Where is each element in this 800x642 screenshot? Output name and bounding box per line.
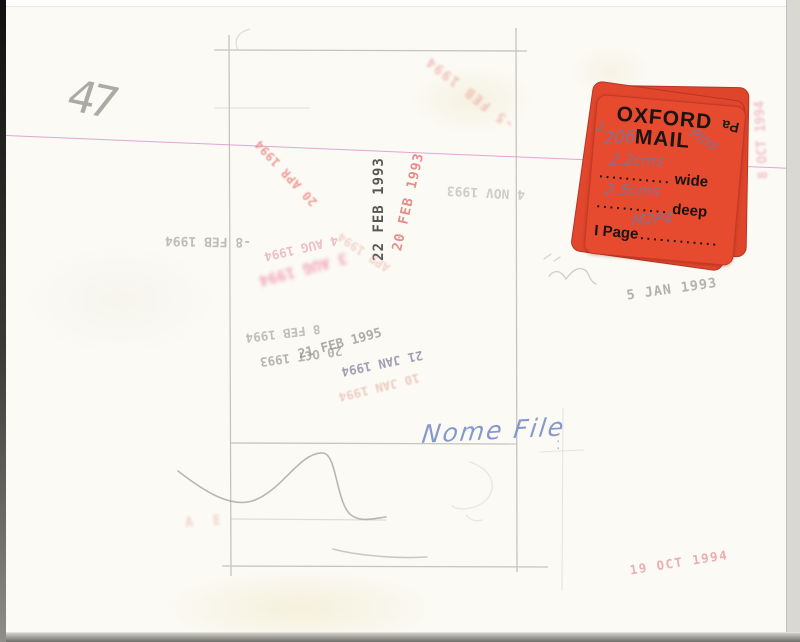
date-stamp: 5 JAN 1993 (626, 277, 718, 303)
photo-back-scan: 47 22 FEB 1993 20 FEB 1993 -5 FEB 1994 2… (0, 0, 800, 642)
scan-edge-bottom (0, 632, 800, 642)
date-stamp: 8 FEB 1994 (245, 322, 321, 344)
date-stamp: 8 OCT 1994 (753, 101, 770, 180)
file-note-mark: : (556, 436, 560, 454)
dotted-line: ........... (596, 196, 670, 215)
date-stamp: -8 FEB 1994 (165, 234, 251, 249)
scan-edge-right (786, 0, 800, 642)
pencil-wavy-curve (178, 453, 427, 558)
file-note-handwriting: Nome File (420, 412, 567, 449)
date-stamp: 20 FEB 1993 (391, 152, 427, 253)
page-label: I Page (594, 223, 639, 242)
date-stamp: 4 NOV 1993 (447, 183, 526, 200)
sticker-flipped-text: Pa (720, 117, 740, 136)
date-stamp: 22 FEB 1993 (372, 157, 386, 261)
scan-edge-top (0, 0, 800, 7)
oxford-mail-sticker: OXFORD MAIL Pa 2 206 Pins 2.2cms 2.5cms … (583, 94, 746, 266)
date-stamp: -5 FEB 1994 (423, 54, 516, 131)
corner-number-handwriting: 47 (61, 71, 120, 129)
date-stamp: 19 OCT 1994 (629, 549, 729, 577)
faded-stamp-fragment: A E (185, 514, 227, 530)
sticker-handwriting: 206 (603, 128, 637, 148)
scan-edge-left (0, 0, 6, 642)
wide-label: wide (674, 172, 709, 190)
dotted-line: ............ (640, 228, 720, 248)
deep-label: deep (672, 202, 708, 220)
